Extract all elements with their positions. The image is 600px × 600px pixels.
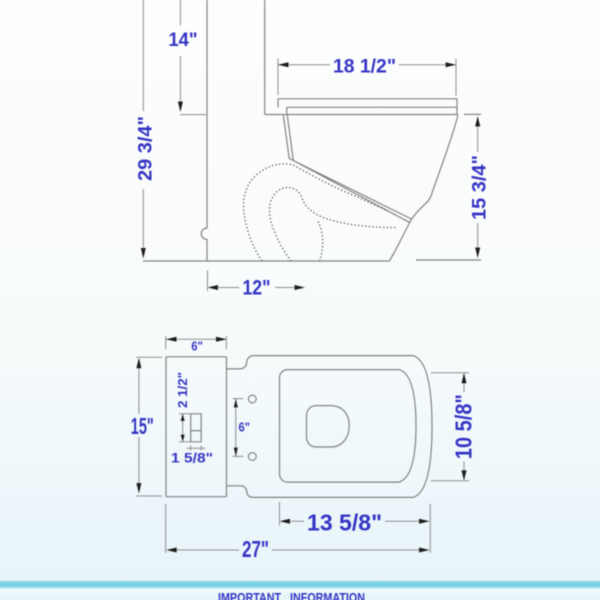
svg-text:27": 27" bbox=[242, 536, 269, 562]
svg-text:12": 12" bbox=[243, 277, 271, 300]
svg-text:IMPORTANT INFORMATION: IMPORTANT INFORMATION bbox=[218, 590, 365, 600]
svg-text:1 5/8": 1 5/8" bbox=[171, 450, 213, 465]
svg-text:6": 6" bbox=[191, 338, 203, 353]
svg-text:10 5/8": 10 5/8" bbox=[451, 394, 477, 459]
svg-text:2 1/2": 2 1/2" bbox=[175, 372, 190, 408]
svg-text:6": 6" bbox=[239, 419, 251, 434]
svg-text:13 5/8": 13 5/8" bbox=[307, 509, 382, 535]
svg-text:15": 15" bbox=[131, 413, 154, 439]
svg-text:14": 14" bbox=[169, 29, 198, 51]
svg-text:18 1/2": 18 1/2" bbox=[333, 56, 396, 78]
svg-text:29 3/4": 29 3/4" bbox=[135, 116, 157, 181]
svg-text:15 3/4": 15 3/4" bbox=[469, 155, 491, 220]
